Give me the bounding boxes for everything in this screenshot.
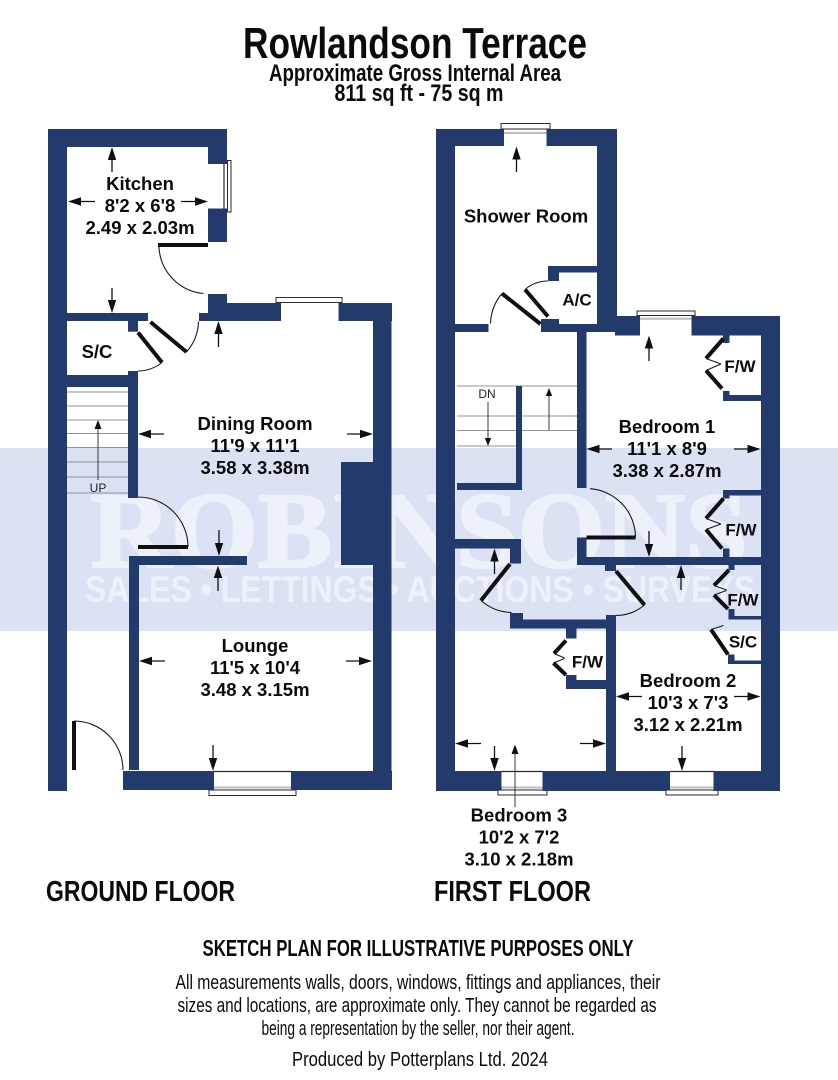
svg-text:GROUND FLOOR: GROUND FLOOR — [46, 876, 235, 908]
svg-text:3.10 x 2.18m: 3.10 x 2.18m — [464, 849, 573, 870]
svg-text:Shower Room: Shower Room — [464, 206, 588, 227]
svg-text:3.38 x 2.87m: 3.38 x 2.87m — [612, 460, 721, 481]
svg-text:SALES • LETTINGS • AUCTIONS •: SALES • LETTINGS • AUCTIONS • SURVEYS — [85, 569, 755, 610]
svg-text:8'2 x 6'8: 8'2 x 6'8 — [105, 195, 176, 216]
svg-text:Lounge: Lounge — [222, 635, 289, 656]
svg-text:S/C: S/C — [729, 633, 757, 652]
svg-text:3.48 x 3.15m: 3.48 x 3.15m — [200, 679, 309, 700]
svg-text:Bedroom 2: Bedroom 2 — [640, 670, 737, 691]
svg-text:2.49 x 2.03m: 2.49 x 2.03m — [85, 217, 194, 238]
svg-text:sizes and locations, are appro: sizes and locations, are approximate onl… — [178, 995, 657, 1017]
svg-text:Produced by Potterplans Ltd. 2: Produced by Potterplans Ltd. 2024 — [292, 1049, 548, 1071]
svg-text:F/W: F/W — [724, 357, 756, 376]
svg-text:F/W: F/W — [725, 521, 757, 540]
svg-text:DN: DN — [478, 387, 495, 401]
svg-text:3.12 x 2.21m: 3.12 x 2.21m — [633, 714, 742, 735]
svg-text:11'9 x 11'1: 11'9 x 11'1 — [210, 435, 299, 456]
svg-text:10'3 x 7'3: 10'3 x 7'3 — [648, 692, 729, 713]
svg-text:11'1 x 8'9: 11'1 x 8'9 — [627, 438, 707, 459]
svg-text:F/W: F/W — [727, 591, 759, 610]
svg-text:10'2 x 7'2: 10'2 x 7'2 — [479, 827, 560, 848]
svg-text:11'5 x 10'4: 11'5 x 10'4 — [210, 657, 301, 678]
svg-text:Kitchen: Kitchen — [106, 173, 174, 194]
svg-text:UP: UP — [90, 481, 107, 495]
svg-text:SKETCH PLAN FOR ILLUSTRATIVE P: SKETCH PLAN FOR ILLUSTRATIVE PURPOSES ON… — [203, 935, 634, 961]
svg-text:FIRST FLOOR: FIRST FLOOR — [434, 876, 591, 908]
svg-text:Bedroom 3: Bedroom 3 — [471, 805, 568, 826]
svg-text:All measurements walls, doors,: All measurements walls, doors, windows, … — [176, 972, 661, 994]
svg-text:Bedroom 1: Bedroom 1 — [619, 416, 716, 437]
svg-text:S/C: S/C — [82, 341, 113, 362]
svg-text:F/W: F/W — [572, 653, 604, 672]
svg-text:3.58 x 3.38m: 3.58 x 3.38m — [200, 457, 309, 478]
svg-text:A/C: A/C — [562, 291, 591, 310]
svg-text:being a representation by the: being a representation by the seller, no… — [262, 1018, 575, 1040]
svg-text:811 sq ft - 75 sq m: 811 sq ft - 75 sq m — [335, 80, 504, 107]
svg-text:Dining Room: Dining Room — [197, 413, 312, 434]
